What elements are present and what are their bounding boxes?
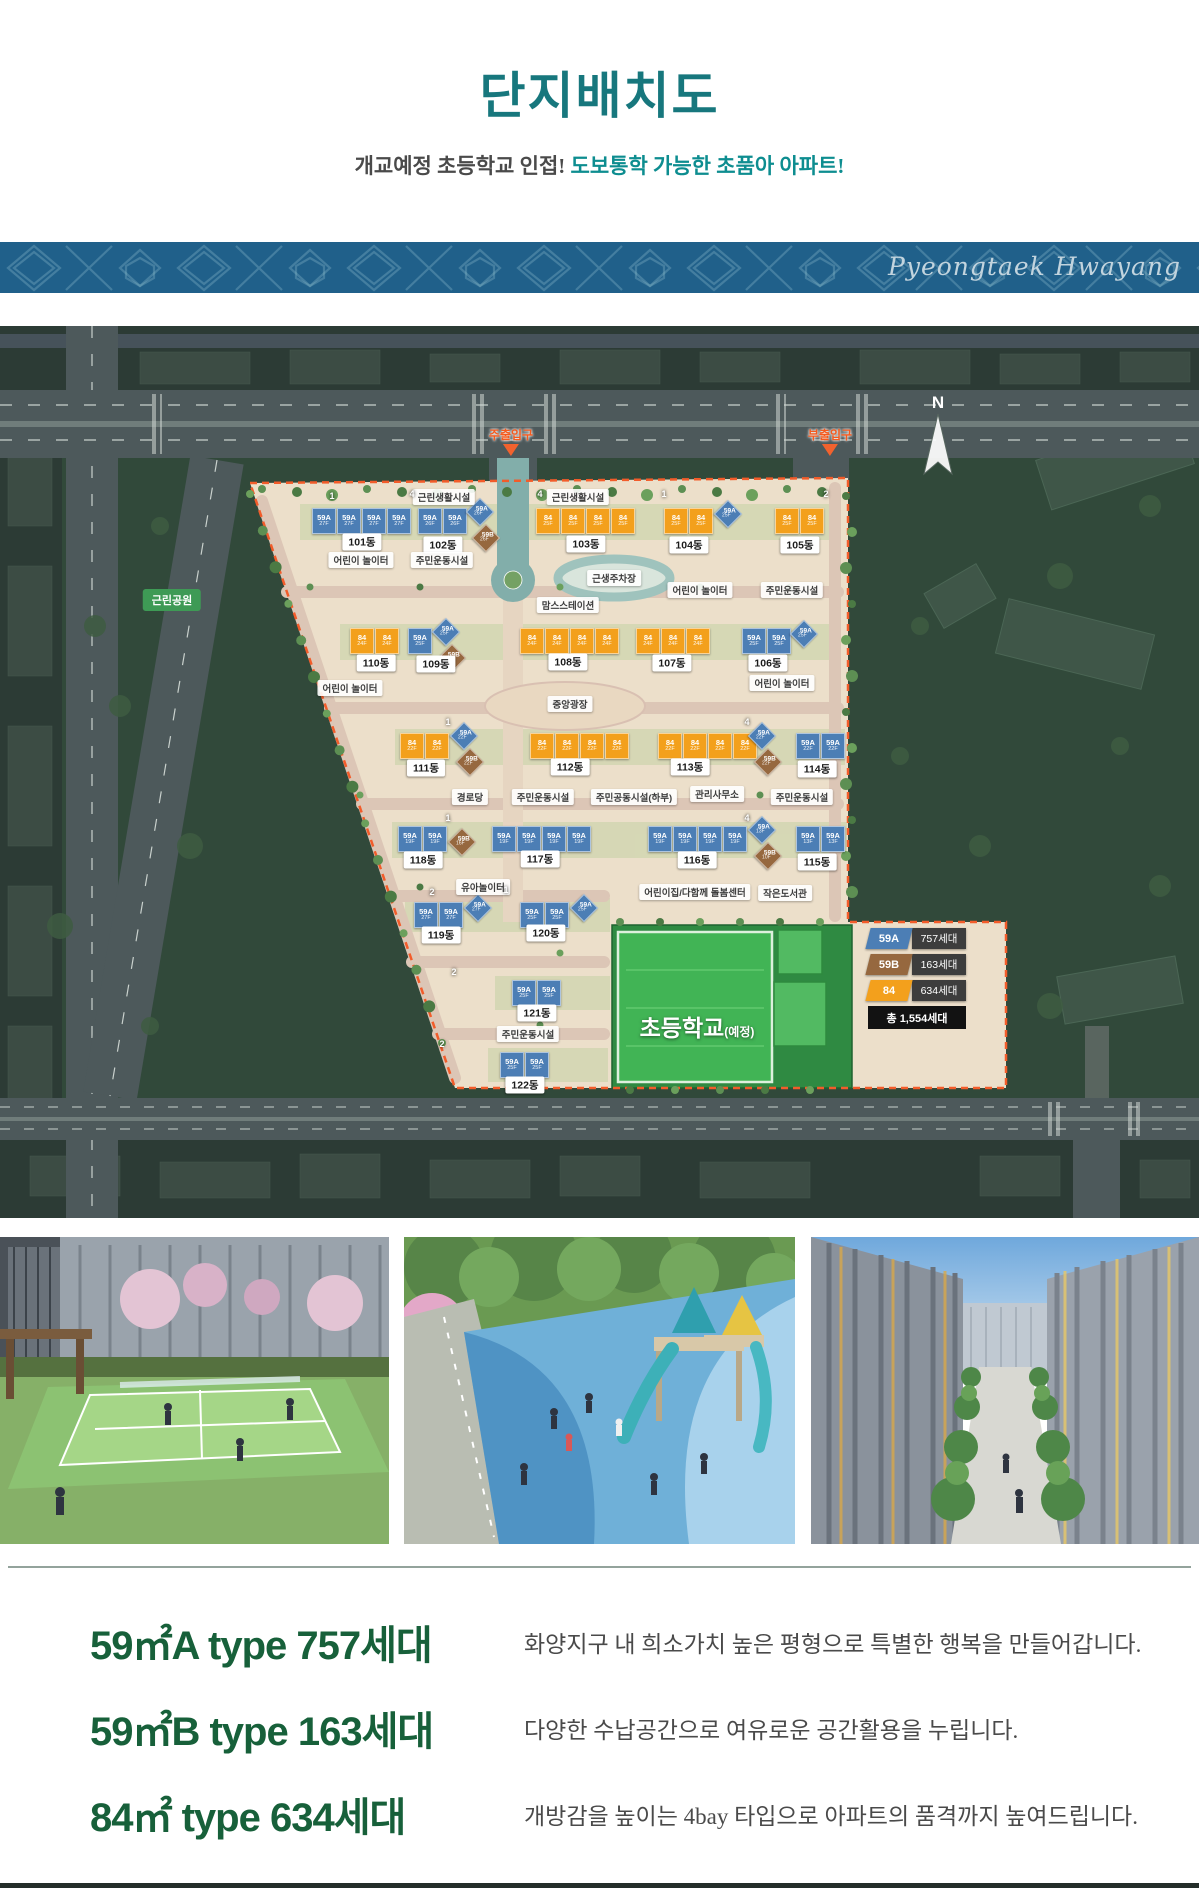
brochure-page: 단지배치도 개교예정 초등학교 인접! 도보통학 가능한 초품아 아파트! Py… [0, 0, 1199, 1888]
building-unit-59A: 59A25F [767, 628, 791, 654]
school-name: 초등학교 [640, 1015, 725, 1041]
building-unit-59A: 59A19F [698, 826, 722, 852]
building-badge: 109동 [416, 656, 455, 673]
lane-count-marker: 2 [429, 887, 434, 897]
building-unit-84: 8422F [658, 733, 682, 759]
building-badge: 102동 [423, 537, 462, 554]
building-badge: 119동 [422, 927, 461, 944]
facility-label: 맘스스테이션 [537, 597, 599, 613]
school-status: (예정) [724, 1025, 754, 1039]
entrance-marker: 주출입구 [489, 426, 533, 456]
building-unit-84: 8422F [580, 733, 604, 759]
building-unit-59A: 59A25F [525, 1052, 549, 1078]
building-unit-84: 8425F [586, 508, 610, 534]
unit-type-desc: 개방감을 높이는 4bay 타입으로 아파트의 품격까지 높여드립니다. [524, 1797, 1138, 1831]
facility-label: 주민운동시설 [761, 582, 823, 598]
building-unit-59A: 59A19F [723, 826, 747, 852]
legend-row: 59A757세대 [868, 928, 966, 949]
building-unit-84: 8425F [561, 508, 585, 534]
building-unit-84: 8422F [708, 733, 732, 759]
building-unit-59A: 59A25F [512, 980, 536, 1006]
building-badge: 105동 [780, 537, 819, 554]
building-badge: 122동 [505, 1077, 544, 1094]
lane-count-marker: 4 [744, 813, 749, 823]
building-unit-59A: 59A27F [439, 902, 463, 928]
building-unit-59A: 59A19F [648, 826, 672, 852]
building-unit-59A: 59A27F [337, 508, 361, 534]
building-unit-59B: 59B26F [472, 524, 500, 552]
unit-type-desc: 다양한 수납공간으로 여유로운 공간활용을 누립니다. [524, 1711, 1018, 1745]
unit-type-desc: 화양지구 내 희소가치 높은 평형으로 특별한 행복을 만들어갑니다. [524, 1625, 1141, 1659]
facility-label: 어린이 놀이터 [749, 675, 814, 691]
building-unit-59A: 59A26F [443, 508, 467, 534]
school-label: 초등학교(예정) [640, 1009, 755, 1043]
building-unit-59A: 59A19F [673, 826, 697, 852]
building-unit-59A: 59A19F [542, 826, 566, 852]
building-badge: 111동 [407, 760, 445, 777]
building-badge: 106동 [748, 655, 787, 672]
building-unit-84: 8424F [595, 628, 619, 654]
building-unit-59A: 59A27F [387, 508, 411, 534]
facility-label: 주민운동시설 [411, 552, 473, 568]
lane-count-marker: 4 [409, 489, 414, 499]
building-badge: 118동 [404, 852, 443, 869]
building-unit-84: 8424F [375, 628, 399, 654]
building-unit-59A: 59A25F [537, 980, 561, 1006]
building-unit-59A: 59A19F [398, 826, 422, 852]
page-title: 단지배치도 [0, 56, 1199, 128]
subtitle-plain: 개교예정 초등학교 인접! [355, 154, 566, 178]
building-unit-84: 8424F [350, 628, 374, 654]
lane-count-marker: 4 [537, 489, 542, 499]
facility-label: 근생주차장 [587, 570, 641, 586]
building-unit-59A: 59A19F [517, 826, 541, 852]
lane-count-marker: 1 [661, 489, 666, 499]
building-badge: 110동 [357, 655, 396, 672]
building-unit-59A: 59A25F [742, 628, 766, 654]
facility-label: 경로당 [452, 789, 488, 805]
building-unit-84: 8425F [536, 508, 560, 534]
building-unit-59A: 59A13F [796, 826, 820, 852]
legend-total: 총 1,554세대 [868, 1006, 966, 1029]
building-badge: 113동 [671, 759, 710, 776]
facility-label: 어린이 놀이터 [317, 680, 382, 696]
legend-row: 59B163세대 [868, 954, 966, 975]
lane-count-marker: 1 [329, 491, 334, 501]
facility-label: 주민운동시설 [497, 1026, 559, 1042]
building-badge: 108동 [548, 654, 587, 671]
building-unit-84: 8424F [520, 628, 544, 654]
building-unit-59A: 59A22F [821, 733, 845, 759]
lane-count-marker: 1 [445, 813, 450, 823]
lane-count-marker: 1 [445, 717, 450, 727]
building-unit-84: 8422F [683, 733, 707, 759]
building-badge: 116동 [678, 852, 717, 869]
map-overlay: 59A27F59A27F59A27F59A27F101동59A26F59A26F… [0, 326, 1199, 1218]
subtitle-accent: 도보통학 가능한 초품아 아파트! [565, 154, 844, 178]
unit-type-row: 59㎡A type 757세대화양지구 내 희소가치 높은 평형으로 특별한 행… [0, 1614, 1199, 1670]
facility-label: 근린생활시설 [413, 489, 475, 505]
brand-script-text: Pyeongtaek Hwayang [888, 252, 1181, 281]
unit-type-title: 84㎡ type 634세대 [90, 1785, 524, 1843]
building-unit-59A: 59A13F [821, 826, 845, 852]
lane-count-marker: 2 [439, 1039, 444, 1049]
building-unit-84: 8422F [425, 733, 449, 759]
building-unit-59A: 59A26F [418, 508, 442, 534]
building-unit-84: 8425F [800, 508, 824, 534]
building-unit-84: 8422F [530, 733, 554, 759]
unit-type-title: 59㎡B type 163세대 [90, 1699, 524, 1757]
building-unit-84: 8422F [400, 733, 424, 759]
facility-label: 어린이집/다함께 돌봄센터 [639, 884, 750, 900]
building-unit-59A: 59A22F [450, 722, 478, 750]
entrance-marker: 부출입구 [808, 426, 852, 456]
building-badge: 103동 [566, 536, 605, 553]
facility-label: 관리사무소 [690, 786, 744, 802]
footer-bar [0, 1883, 1199, 1888]
building-unit-84: 8424F [570, 628, 594, 654]
building-badge: 112동 [551, 759, 590, 776]
building-unit-84: 8425F [664, 508, 688, 534]
building-unit-84: 8425F [775, 508, 799, 534]
pattern-banner: Pyeongtaek Hwayang [0, 242, 1199, 293]
building-badge: 117동 [521, 851, 560, 868]
building-unit-84: 8425F [611, 508, 635, 534]
unit-type-row: 84㎡ type 634세대개방감을 높이는 4bay 타입으로 아파트의 품격… [0, 1786, 1199, 1842]
facility-label: 주민운동시설 [512, 789, 574, 805]
building-unit-59A: 59A27F [414, 902, 438, 928]
building-unit-84: 8424F [545, 628, 569, 654]
lane-count-marker: 2 [451, 967, 456, 977]
facility-label: 작은도서관 [758, 885, 812, 901]
lane-count-marker: 1 [503, 885, 508, 895]
section-divider [8, 1566, 1191, 1568]
building-unit-84: 8422F [555, 733, 579, 759]
building-badge: 114동 [798, 761, 837, 778]
unit-type-row: 59㎡B type 163세대다양한 수납공간으로 여유로운 공간활용을 누립니… [0, 1700, 1199, 1756]
building-badge: 101동 [342, 534, 381, 551]
building-unit-59B: 59B22F [456, 748, 484, 776]
building-unit-59B: 59B10F [754, 842, 782, 870]
legend-row: 84634세대 [868, 980, 966, 1001]
building-unit-84: 8422F [605, 733, 629, 759]
building-unit-59A: 59A13F [748, 816, 776, 844]
playground-photo [404, 1237, 795, 1544]
building-unit-84: 8424F [661, 628, 685, 654]
building-unit-59A: 59A25F [790, 620, 818, 648]
building-badge: 120동 [526, 925, 565, 942]
building-badge: 104동 [669, 537, 708, 554]
building-unit-59A: 59A27F [362, 508, 386, 534]
park-label: 근린공원 [143, 589, 201, 611]
building-unit-59A: 59A25F [714, 500, 742, 528]
lane-count-marker: 2 [823, 489, 828, 499]
facility-label: 어린이 놀이터 [667, 582, 732, 598]
facility-label: 주민공동시설(하부) [591, 789, 677, 805]
building-unit-59A: 59A19F [423, 826, 447, 852]
facility-label: 유아놀이터 [456, 879, 510, 895]
building-unit-59A: 59A22F [796, 733, 820, 759]
legend: 59A757세대59B163세대84634세대총 1,554세대 [868, 928, 966, 1029]
lane-count-marker: 4 [744, 717, 749, 727]
building-badge: 121동 [517, 1005, 556, 1022]
facility-label: 주민운동시설 [771, 789, 833, 805]
street-walkway-photo [811, 1237, 1199, 1544]
building-unit-59A: 59A19F [567, 826, 591, 852]
building-badge: 107동 [652, 655, 691, 672]
building-badge: 115동 [798, 854, 837, 871]
facility-label: 근린생활시설 [547, 489, 609, 505]
unit-type-title: 59㎡A type 757세대 [90, 1613, 524, 1671]
building-unit-59A: 59A25F [432, 618, 460, 646]
building-unit-59A: 59A25F [500, 1052, 524, 1078]
tennis-court-photo [0, 1237, 389, 1544]
building-unit-59A: 59A25F [570, 894, 598, 922]
building-unit-84: 8425F [689, 508, 713, 534]
building-unit-59A: 59A27F [312, 508, 336, 534]
site-plan-map: N 59A27F59A27F59A27F59A27F101동59A26F59A2… [0, 326, 1199, 1218]
page-subtitle: 개교예정 초등학교 인접! 도보통학 가능한 초품아 아파트! [0, 150, 1199, 180]
facility-label: 어린이 놀이터 [328, 552, 393, 568]
building-unit-84: 8424F [636, 628, 660, 654]
building-unit-59A: 59A19F [492, 826, 516, 852]
building-unit-59A: 59A27F [464, 894, 492, 922]
building-unit-84: 8424F [686, 628, 710, 654]
building-unit-59B: 59B16F [448, 828, 476, 856]
building-unit-59A: 59A25F [408, 628, 432, 654]
building-unit-59B: 59B22F [754, 748, 782, 776]
facility-label: 중앙광장 [548, 696, 593, 712]
